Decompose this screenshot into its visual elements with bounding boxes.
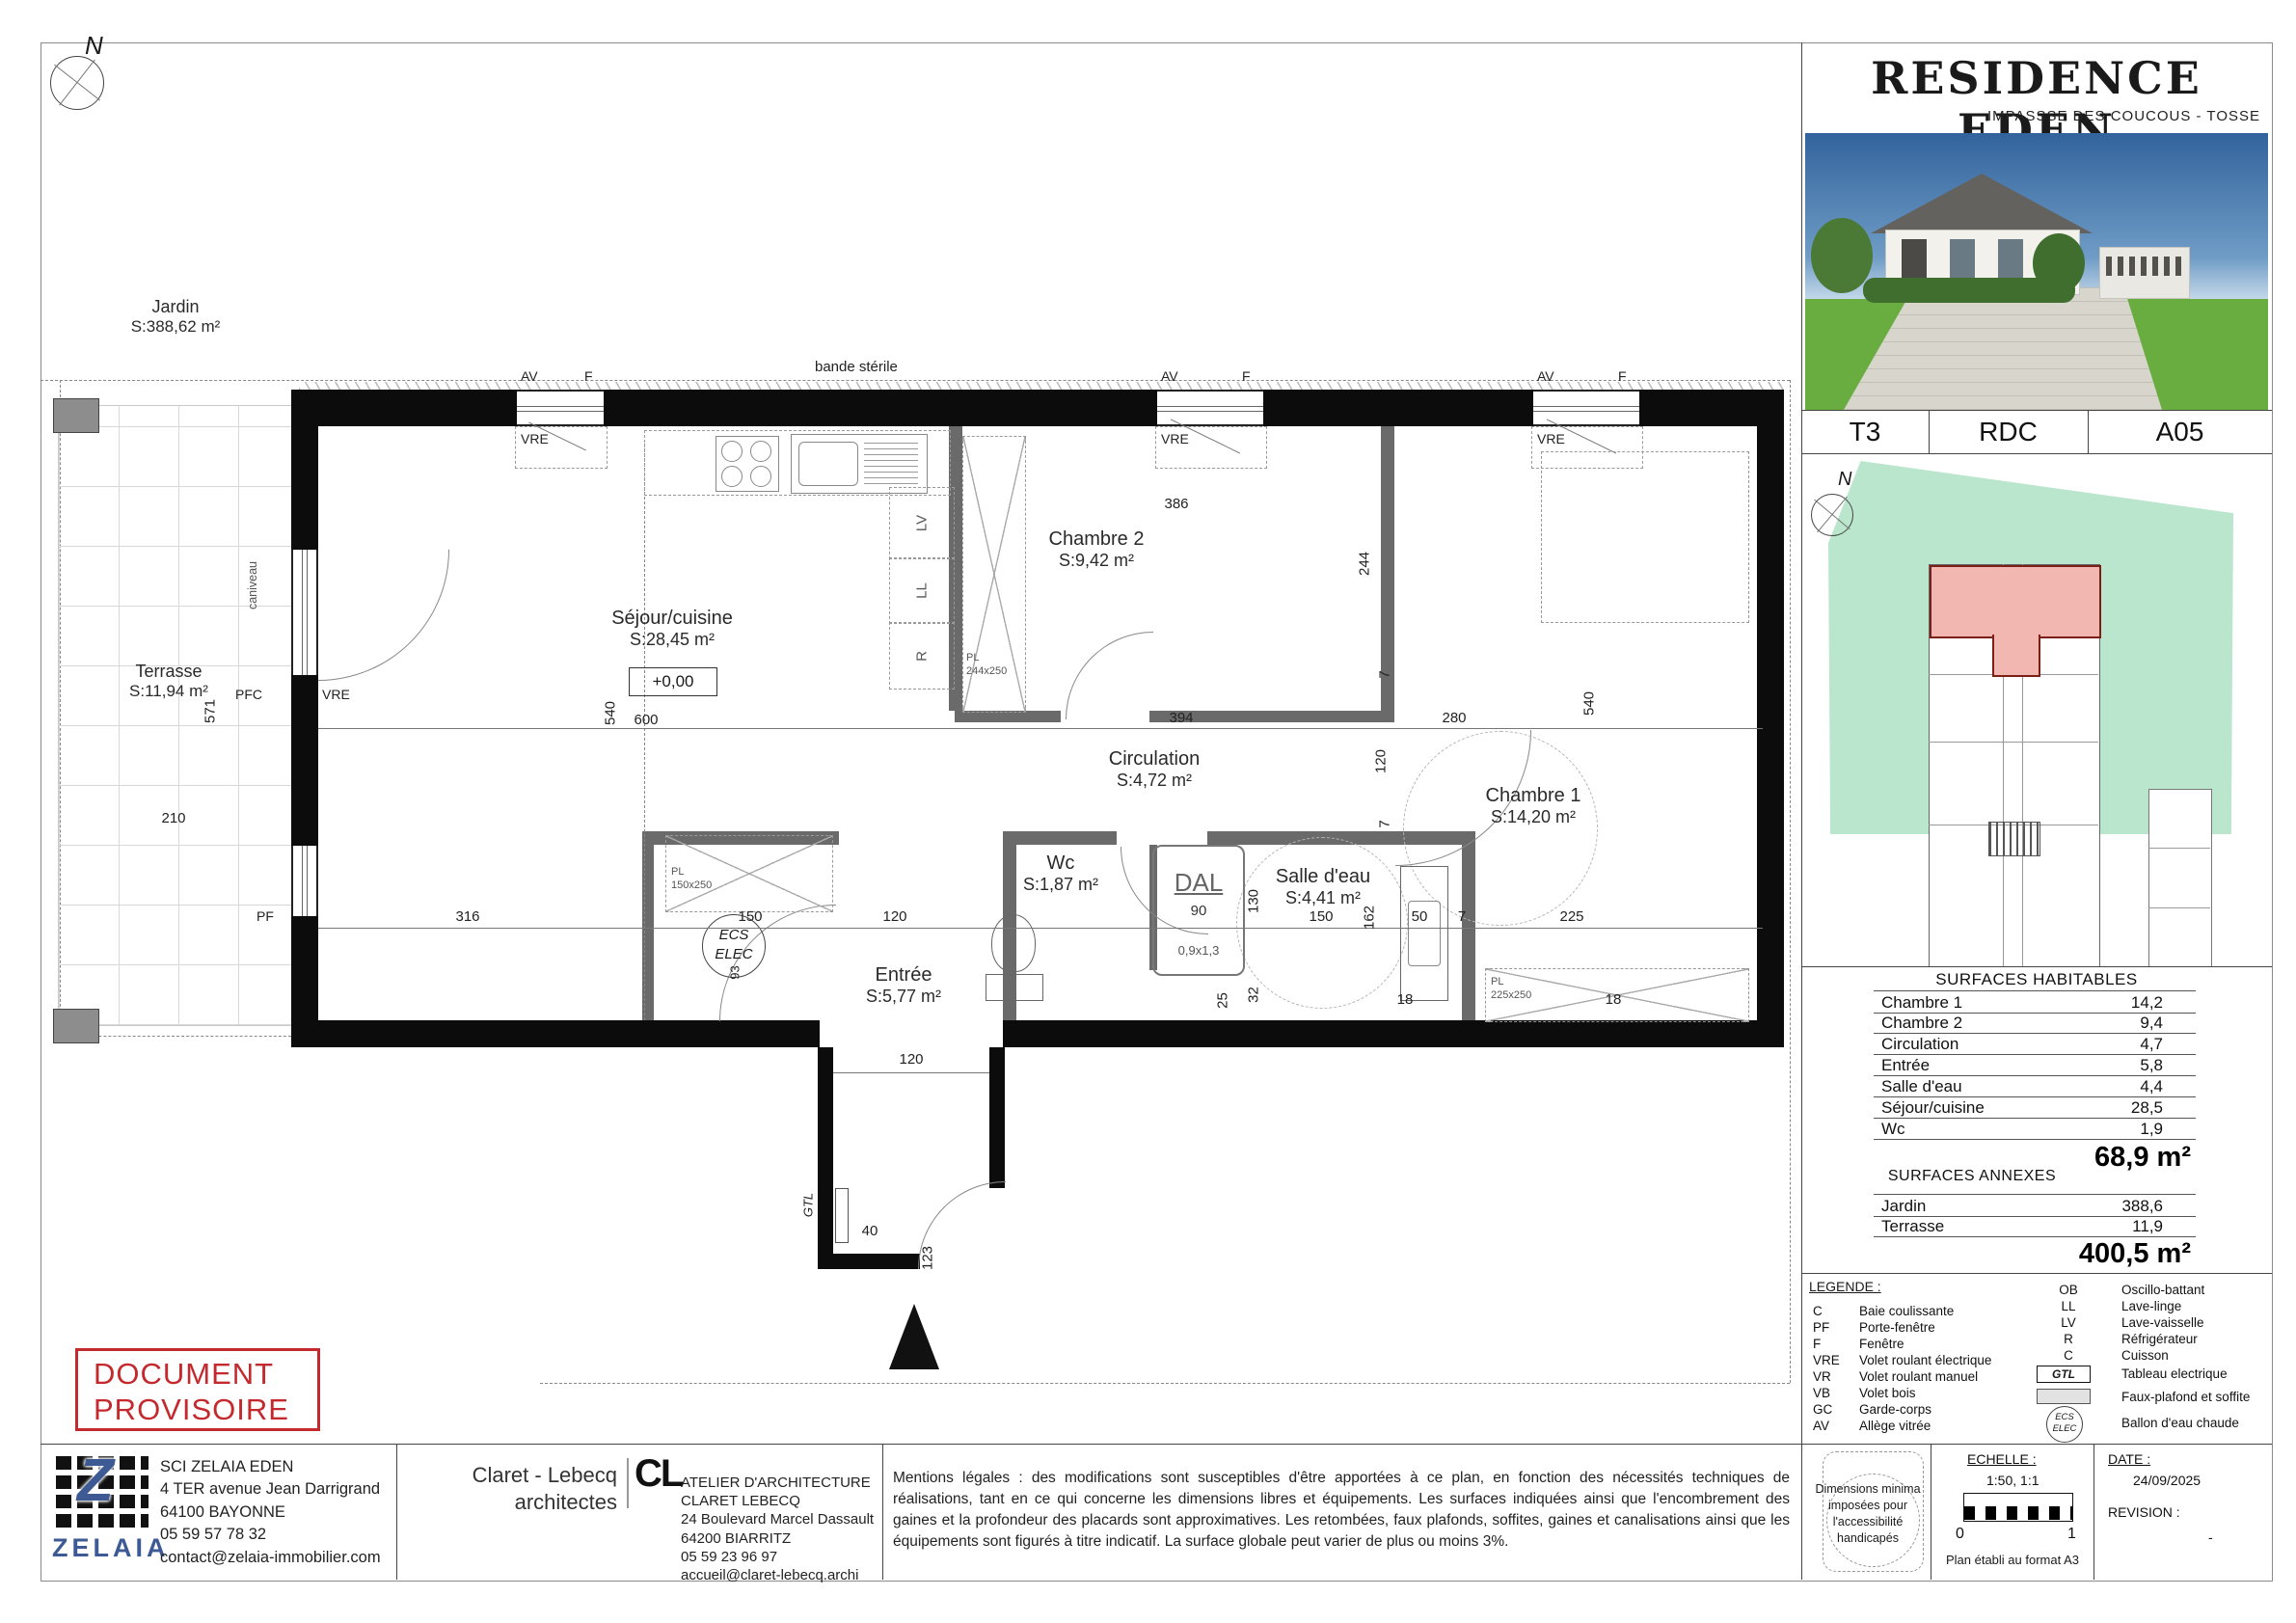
wall (299, 1020, 820, 1047)
dim: 600 (617, 712, 675, 728)
site-unit-stem (1992, 635, 2040, 677)
wall (291, 675, 318, 846)
dim: 225 (1543, 908, 1601, 925)
site-neighbor (2148, 789, 2212, 966)
room-label-entree: Entrée S:5,77 m² (807, 964, 1000, 1007)
appliance-lv: LV (889, 487, 955, 559)
surface-row: Jardin388,6 (1874, 1194, 2196, 1217)
gtl-box (835, 1188, 849, 1243)
zone-boundary (644, 444, 645, 1020)
dim: 130 (1246, 873, 1262, 931)
jardin-boundary (540, 1383, 1790, 1384)
echelle-value: 1:50, 1:1 (1986, 1473, 2039, 1488)
dim: 25 (1215, 972, 1231, 1030)
accessibility-note: Dimensions minima imposées pour l'access… (1803, 1481, 1932, 1547)
site-unit-highlight (1930, 565, 2101, 638)
scale-bar (1963, 1493, 2073, 1522)
footer-divider (2093, 1444, 2094, 1580)
scale-zero: 0 (1956, 1526, 1964, 1543)
dim: 93 (728, 944, 743, 1002)
dim: 7 (1450, 908, 1473, 925)
cl-logo: CL (635, 1452, 682, 1496)
surface-row: Chambre 114,2 (1874, 990, 2196, 1014)
brand-divider (627, 1458, 629, 1508)
room-label-circulation: Circulation S:4,72 m² (1058, 748, 1251, 791)
panel-line (1801, 1273, 2272, 1274)
project-subtitle: IMPASSSE DES COUCOUS - TOSSE (1807, 108, 2260, 124)
dim: 32 (1246, 966, 1262, 1024)
surface-row: Entrée5,8 (1874, 1054, 2196, 1076)
site-line (1929, 742, 2098, 743)
site-line (2148, 907, 2210, 908)
jardin-boundary (1790, 380, 1791, 1383)
post (53, 398, 99, 433)
sink-bowl-icon (798, 442, 858, 486)
dim: 123 (920, 1230, 936, 1287)
dim: 162 (1362, 889, 1378, 947)
zelaia-logo-z: Z (77, 1447, 114, 1515)
dim: 50 (1400, 908, 1439, 925)
surface-row: Circulation4,7 (1874, 1033, 2196, 1055)
dim: 120 (1373, 733, 1390, 791)
wall (291, 390, 318, 550)
footer-top-line (41, 1444, 2272, 1445)
wall (1263, 390, 1533, 426)
terrasse-deck (58, 405, 293, 1026)
building-window (1998, 239, 2023, 278)
building-window (1902, 239, 1927, 278)
window-tag: F (1618, 368, 1627, 384)
toilet-icon (991, 914, 1036, 972)
bande-sterile-line (41, 380, 1790, 381)
dim: 120 (839, 1051, 984, 1068)
wall (604, 390, 1157, 426)
window-tag: VRE (521, 431, 549, 446)
sink-drainer-icon (864, 442, 918, 484)
tree (1811, 218, 1873, 293)
window (517, 390, 604, 426)
post (53, 1009, 99, 1043)
dim: 394 (1152, 710, 1210, 726)
closet-pl-150 (665, 835, 833, 912)
window-tag: F (584, 368, 593, 384)
architect-brand: Claret - Lebecq architectes (405, 1462, 617, 1515)
unit-floor: RDC (1929, 417, 2088, 447)
surface-row: Terrasse11,9 (1874, 1215, 2196, 1237)
panel-line (1801, 410, 2272, 411)
window-tag: VRE (322, 687, 350, 702)
building-window (1950, 239, 1975, 278)
surfaces-habitables-heading: SURFACES HABITABLES (1801, 970, 2272, 989)
footer-divider (396, 1444, 397, 1580)
annex-slats (2106, 257, 2181, 276)
site-line (2148, 848, 2210, 849)
caniveau-label: caniveau (246, 547, 259, 624)
hedge (1863, 278, 2075, 303)
room-label-wc: Wc S:1,87 m² (1003, 852, 1119, 895)
hob-burner-icon (750, 441, 771, 462)
appliance-r: R (889, 622, 955, 690)
dim: 540 (1581, 675, 1598, 733)
developer-info: SCI ZELAIA EDEN 4 TER avenue Jean Darrig… (160, 1456, 392, 1569)
wall (299, 390, 517, 426)
dimension-line (318, 728, 1763, 729)
dim: 316 (439, 908, 497, 925)
surface-row: Séjour/cuisine28,5 (1874, 1096, 2196, 1119)
ecs-symbol: ECS ELEC (2046, 1406, 2083, 1443)
legal-mentions: Mentions légales : des modifications son… (893, 1468, 1790, 1553)
level-box: +0,00 (629, 667, 717, 696)
window-tag: AV (1161, 368, 1178, 384)
provisional-stamp: DOCUMENT PROVISOIRE (75, 1348, 320, 1431)
dim: 386 (1148, 496, 1205, 512)
dimension-line (833, 1072, 989, 1073)
revision-label: REVISION : (2108, 1504, 2180, 1520)
furniture-outline (1541, 451, 1749, 623)
dim: 120 (866, 908, 924, 925)
dim: 210 (145, 810, 203, 826)
surface-row: Wc1,9 (1874, 1118, 2196, 1140)
echelle-label: ECHELLE : (1967, 1451, 2037, 1467)
window-tag: AV (521, 368, 538, 384)
wall (818, 1047, 833, 1269)
unit-type: T3 (1801, 417, 1929, 447)
window-tag: AV (1537, 368, 1554, 384)
window (291, 550, 318, 675)
window-tag: VRE (1161, 431, 1189, 446)
site-plan: N (1802, 454, 2272, 966)
dim: 244 (1357, 535, 1373, 593)
north-label: N (85, 31, 103, 61)
hob-burner-icon (721, 441, 743, 462)
hob-burner-icon (750, 466, 771, 487)
dim: 7 (1377, 646, 1393, 704)
entrance-arrow-icon (889, 1304, 939, 1369)
surfaces-annexes-heading: SURFACES ANNEXES (1823, 1168, 2121, 1185)
architect-info: ATELIER D'ARCHITECTURE CLARET LEBECQ 24 … (681, 1474, 878, 1584)
wall (989, 1047, 1005, 1188)
hob-burner-icon (721, 466, 743, 487)
gtl-symbol: GTL (2037, 1366, 2091, 1383)
dim: 18 (1599, 991, 1628, 1008)
surfaces-annexes-total: 400,5 m² (1986, 1238, 2191, 1270)
dim: 150 (1292, 908, 1350, 925)
footer-divider (882, 1444, 883, 1580)
dimension-line (318, 928, 1763, 929)
dim: 7 (1377, 796, 1393, 853)
site-north-label: N (1838, 469, 1851, 491)
unit-number: A05 (2088, 417, 2272, 447)
scale-one: 1 (2067, 1526, 2076, 1543)
format-note: Plan établi au format A3 (1932, 1553, 2093, 1567)
room-label-terrasse: Terrasse S:11,94 m² (92, 662, 246, 701)
dim: 571 (203, 683, 219, 741)
window-tag: F (1242, 368, 1251, 384)
room-label-jardin: Jardin S:388,62 m² (98, 297, 253, 337)
room-label-sejour: Séjour/cuisine S:28,45 m² (576, 608, 769, 650)
window-tag: VRE (1537, 431, 1565, 446)
wall (1003, 831, 1117, 845)
room-label-chambre1: Chambre 1 S:14,20 m² (1437, 785, 1630, 827)
wall (1003, 1020, 1784, 1047)
dim: 40 (849, 1223, 891, 1239)
surface-row: Chambre 29,4 (1874, 1012, 2196, 1034)
scale-bar-blocks (1964, 1506, 2072, 1520)
shower-dal: DAL 90 0,9x1,3 (1152, 845, 1245, 976)
dim: 18 (1391, 991, 1419, 1008)
plan-sheet: N Jardin S:388,62 m² bande stérile Terra… (0, 0, 2296, 1623)
window-tag: PF (257, 908, 274, 924)
wall (1757, 390, 1784, 1047)
bande-sterile-label: bande stérile (815, 359, 898, 375)
date-value: 24/09/2025 (2133, 1473, 2201, 1488)
legend-heading: LEGENDE : (1809, 1279, 1881, 1294)
panel-line (1801, 966, 2272, 967)
gtl-label: GTL (801, 1184, 816, 1227)
room-label-chambre2: Chambre 2 S:9,42 m² (1000, 528, 1193, 571)
dim: 280 (1425, 710, 1483, 726)
zelaia-wordmark: ZELAIA (52, 1533, 170, 1563)
faux-plafond-symbol (2037, 1389, 2091, 1404)
render-photo (1805, 133, 2268, 410)
surface-row: Salle d'eau4,4 (1874, 1075, 2196, 1097)
window (291, 846, 318, 916)
site-stairs (1988, 822, 2040, 856)
window-tag: PFC (235, 687, 262, 702)
wall (818, 1254, 920, 1269)
dim: 540 (603, 685, 619, 743)
dim: 150 (721, 908, 779, 925)
revision-value: - (2208, 1529, 2213, 1545)
appliance-ll: LL (889, 557, 955, 624)
date-label: DATE : (2108, 1451, 2150, 1467)
